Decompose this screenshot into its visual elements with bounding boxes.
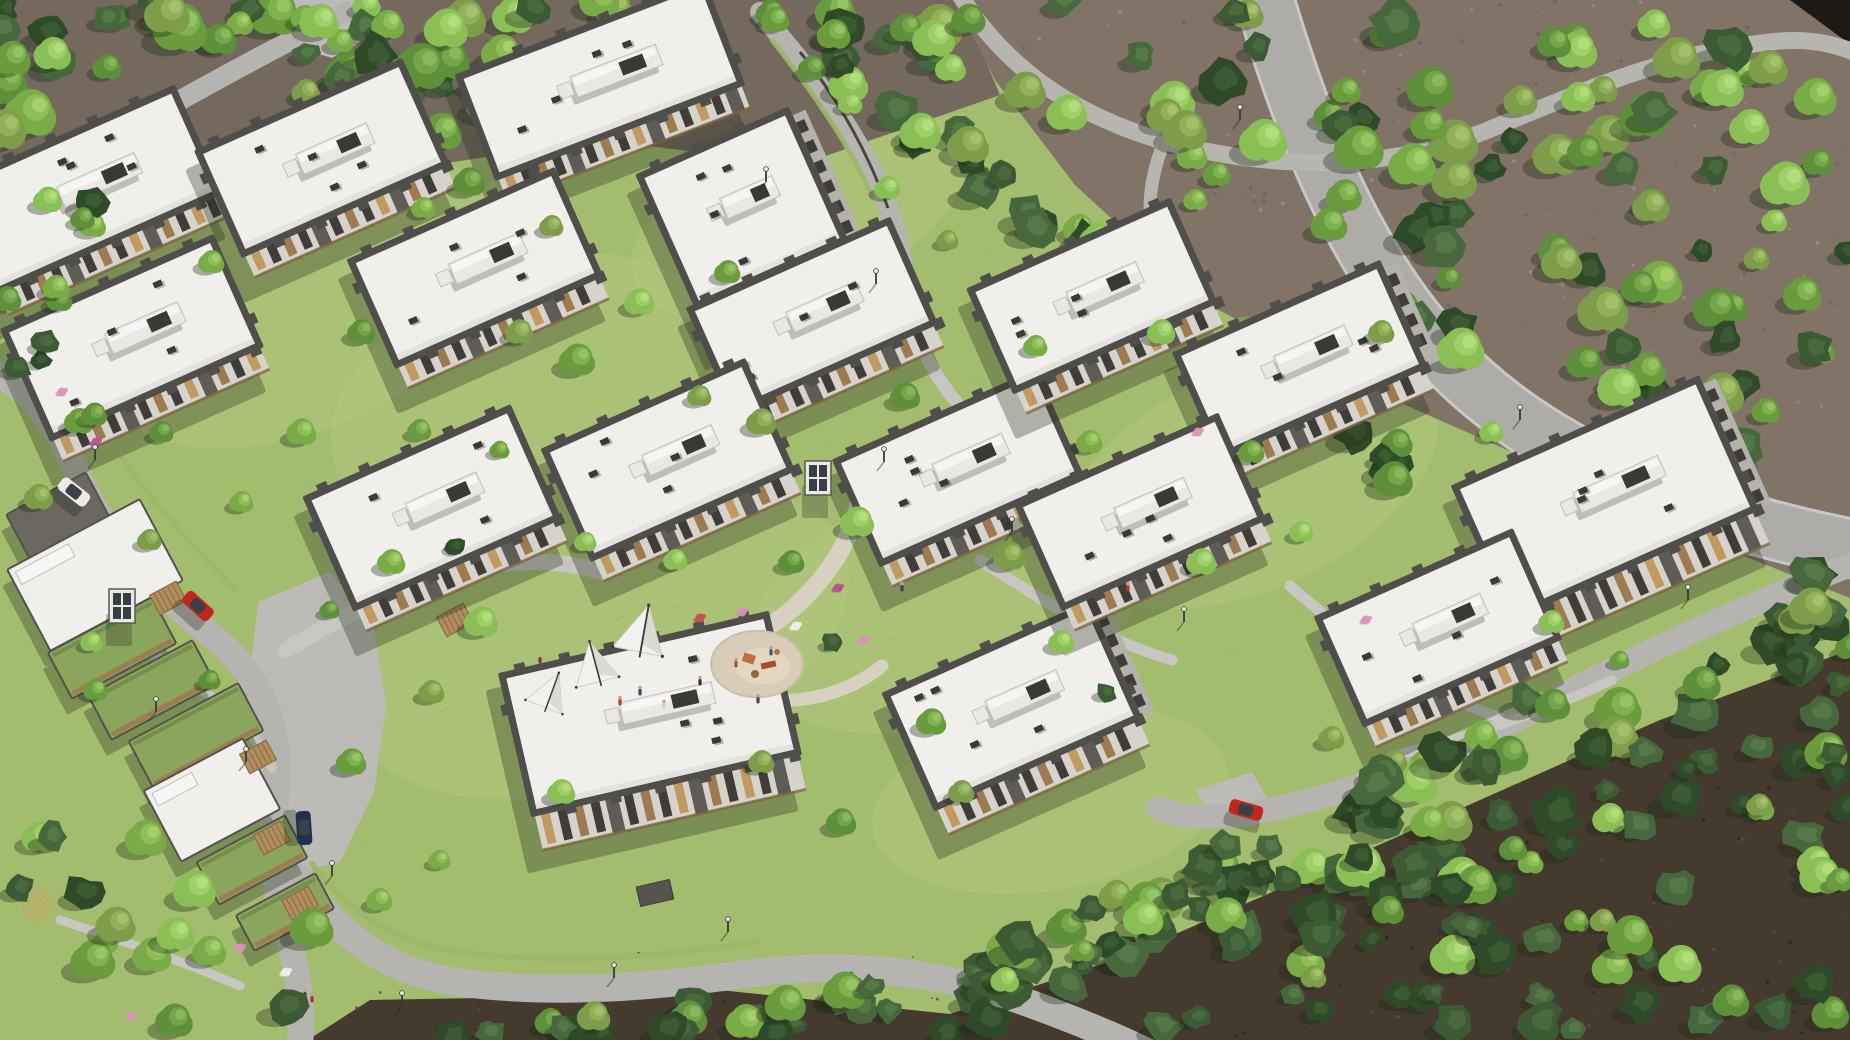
person [1126, 582, 1130, 592]
elevator-shaft-tower [802, 461, 831, 518]
elevator-shaft-tower [106, 589, 135, 646]
person [734, 658, 738, 668]
car-navy [283, 809, 313, 847]
person [618, 696, 622, 706]
render-canvas [0, 0, 1850, 1040]
person [310, 993, 314, 1003]
aerial-site-render [0, 0, 1850, 1040]
person [756, 694, 760, 704]
person [538, 654, 542, 664]
person [769, 646, 773, 656]
person [662, 700, 666, 710]
play-structure [751, 670, 759, 678]
person [638, 686, 642, 696]
person [900, 582, 904, 592]
person [698, 676, 702, 686]
playground [711, 631, 803, 697]
